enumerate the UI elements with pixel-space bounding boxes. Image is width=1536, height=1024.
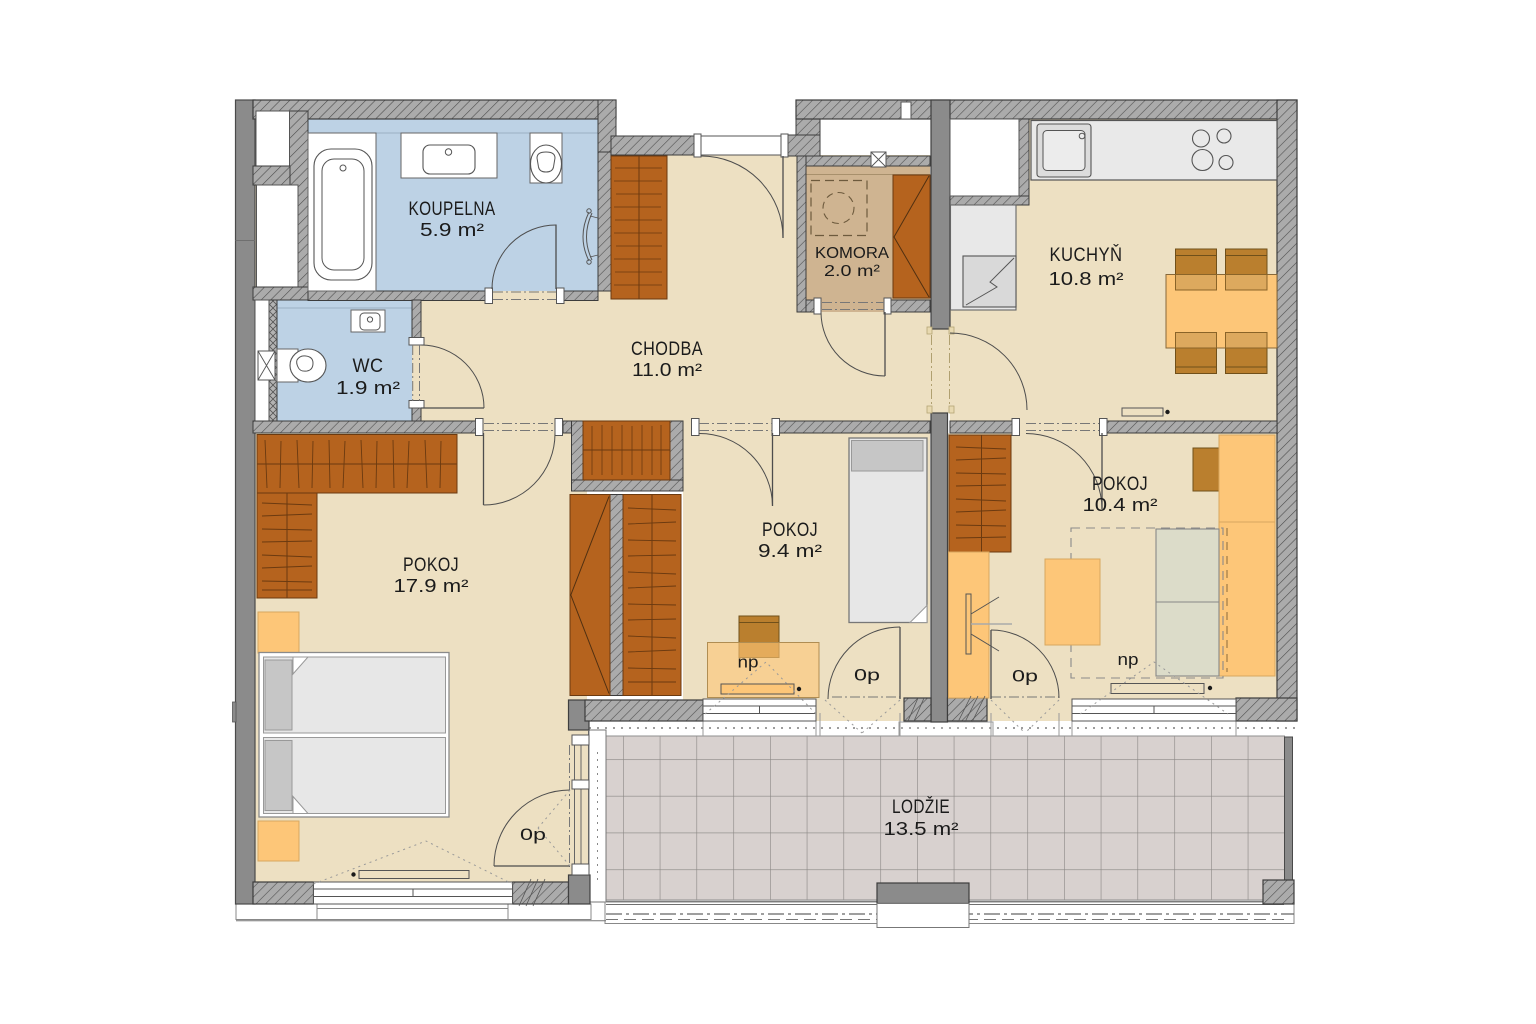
svg-text:POKOJ: POKOJ — [762, 520, 818, 541]
svg-text:np: np — [738, 653, 759, 672]
svg-text:2.0 m²: 2.0 m² — [824, 263, 881, 280]
svg-text:POKOJ: POKOJ — [1092, 474, 1148, 495]
svg-text:5.9 m²: 5.9 m² — [420, 220, 484, 240]
svg-text:KOUPELNA: KOUPELNA — [409, 199, 496, 220]
svg-text:WC: WC — [353, 356, 384, 377]
svg-text:0p: 0p — [1012, 667, 1038, 686]
svg-text:KOMORA: KOMORA — [815, 245, 889, 262]
svg-text:9.4 m²: 9.4 m² — [758, 541, 822, 561]
svg-text:CHODBA: CHODBA — [631, 339, 703, 360]
svg-text:1.9 m²: 1.9 m² — [336, 378, 400, 398]
svg-text:LODŽIE: LODŽIE — [892, 796, 950, 818]
svg-text:KUCHYŇ: KUCHYŇ — [1050, 244, 1123, 266]
svg-text:17.9 m²: 17.9 m² — [394, 576, 469, 596]
svg-text:10.8 m²: 10.8 m² — [1049, 269, 1124, 289]
svg-text:10.4 m²: 10.4 m² — [1083, 495, 1158, 515]
svg-text:0p: 0p — [520, 825, 546, 844]
svg-text:0p: 0p — [854, 666, 880, 685]
svg-text:11.0 m²: 11.0 m² — [632, 360, 702, 380]
svg-text:np: np — [1118, 650, 1139, 669]
svg-text:POKOJ: POKOJ — [403, 555, 459, 576]
svg-text:13.5 m²: 13.5 m² — [884, 819, 959, 839]
